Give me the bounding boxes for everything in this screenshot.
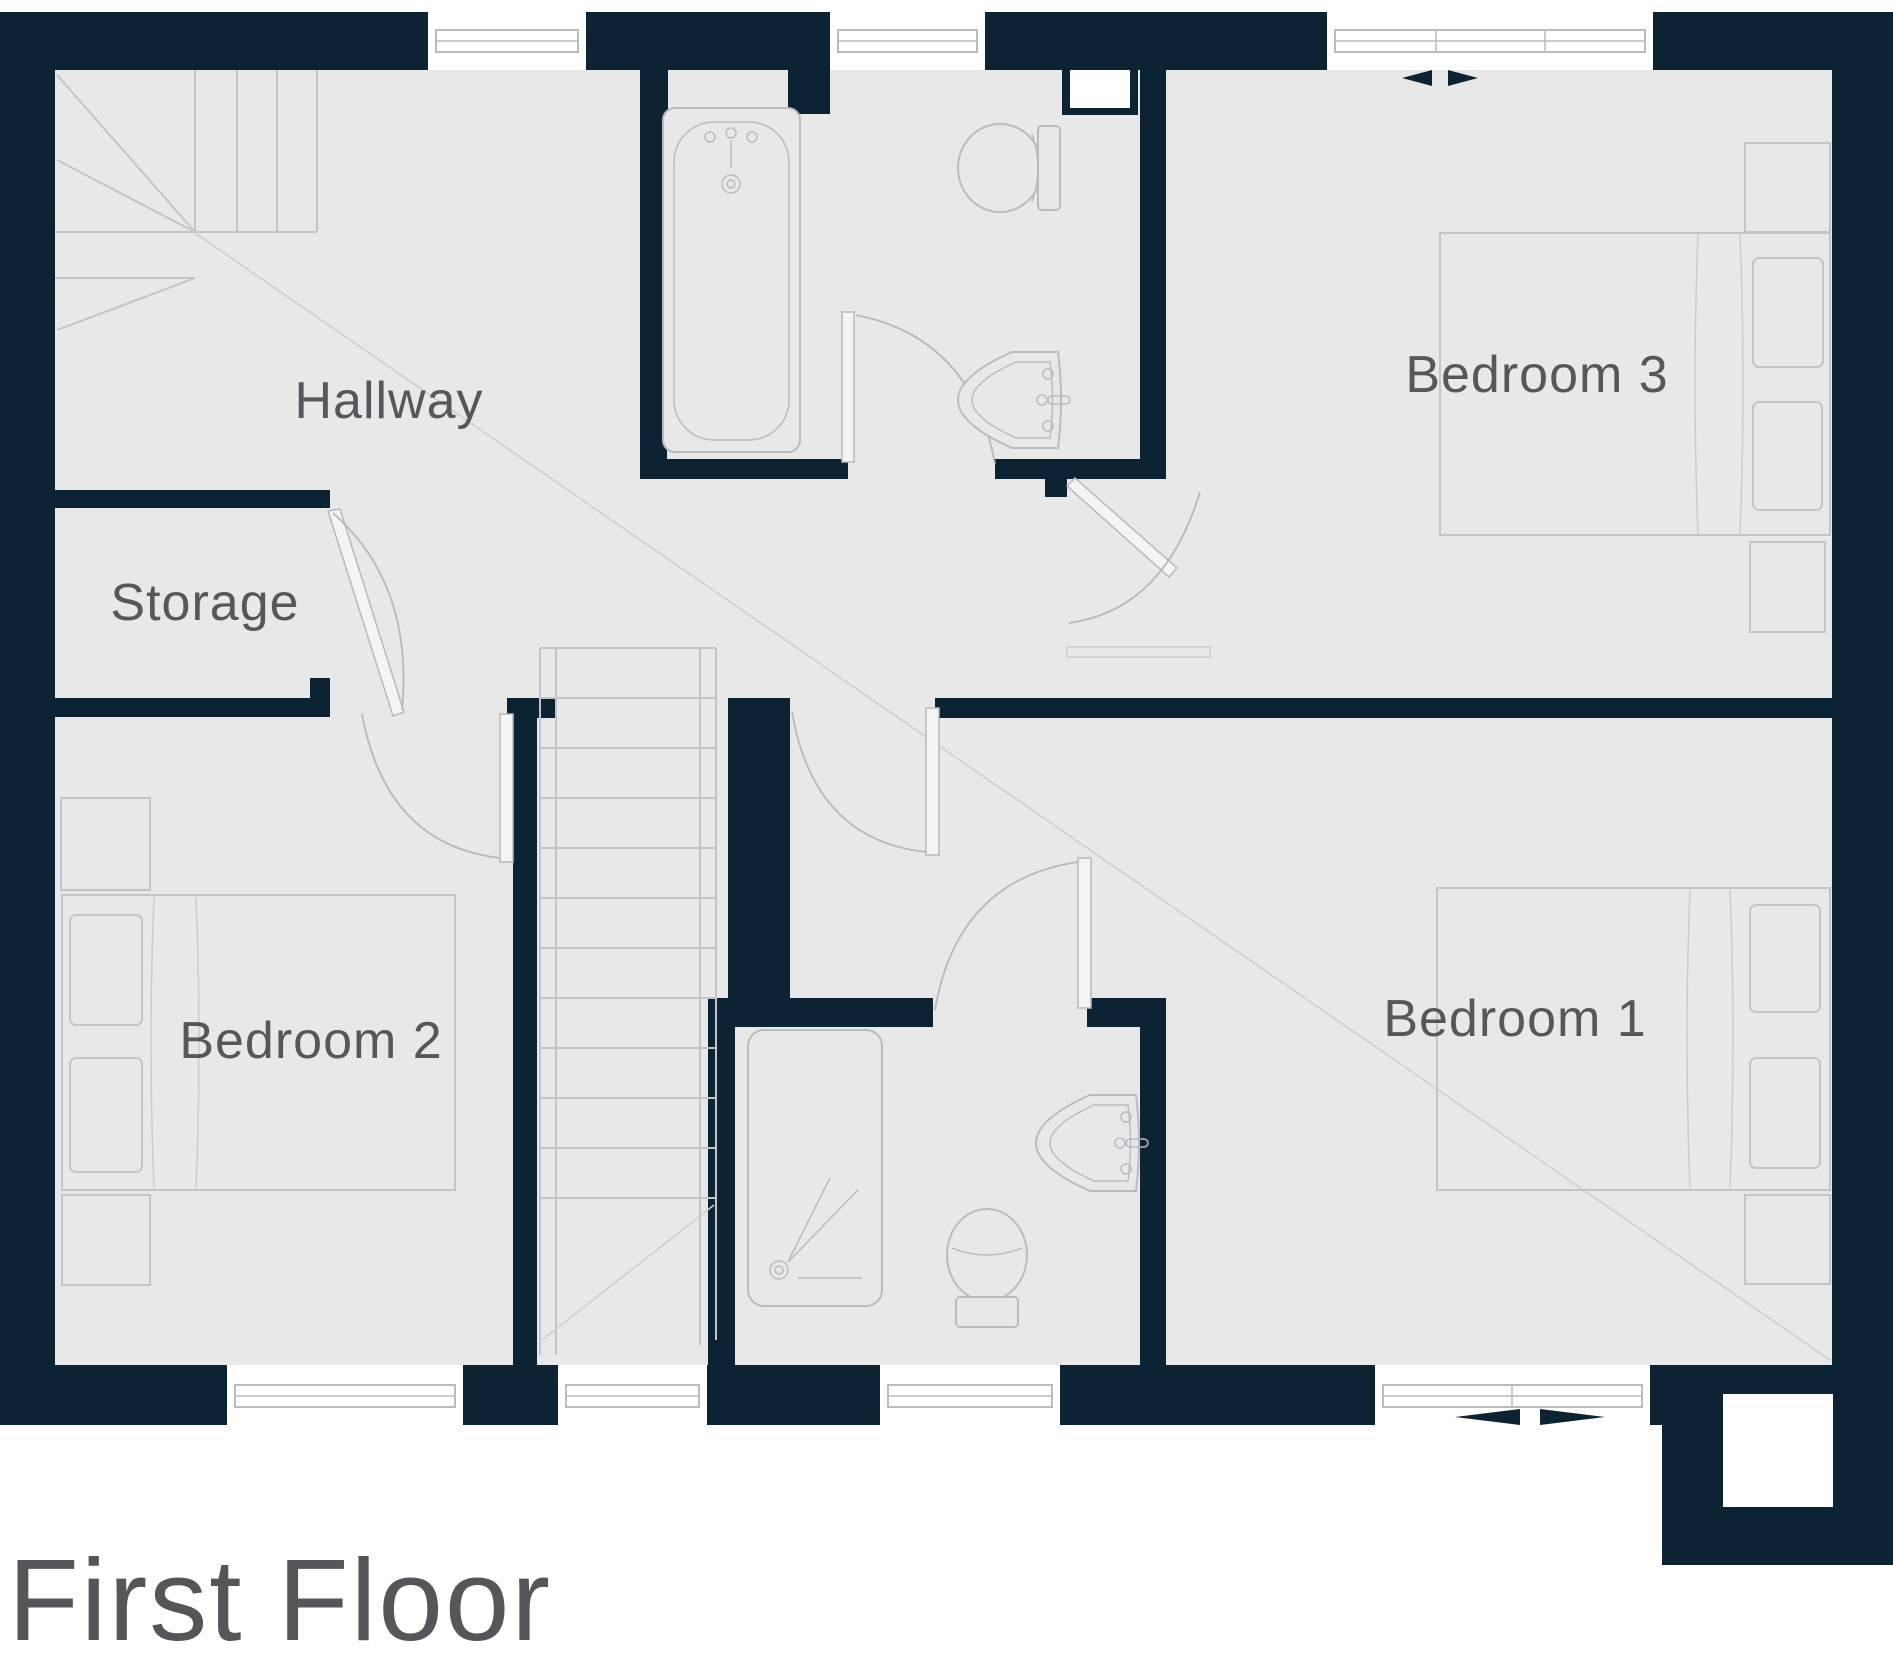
exterior-notch	[1723, 1394, 1833, 1507]
window-bottom-1	[227, 1365, 463, 1425]
window-bottom-4	[1375, 1365, 1650, 1425]
shower-tray	[748, 1030, 882, 1306]
window-bottom-2	[558, 1365, 707, 1425]
wall-recess	[1070, 70, 1130, 108]
floor-plan-svg: Hallway Storage Bedroom 2 Bedroom 3 Bedr…	[0, 0, 1893, 1653]
floor-step	[1085, 1338, 1136, 1365]
bedroom1-label: Bedroom 1	[1383, 990, 1646, 1048]
shower-room-toilet	[947, 1209, 1027, 1327]
bathtub	[663, 108, 800, 452]
bathroom-toilet	[958, 124, 1060, 212]
storage-label: Storage	[110, 574, 299, 632]
floor-plan-page: Hallway Storage Bedroom 2 Bedroom 3 Bedr…	[0, 0, 1893, 1653]
bedroom3-label: Bedroom 3	[1405, 346, 1668, 404]
window-bottom-3	[880, 1365, 1060, 1425]
page-title: First Floor	[8, 1535, 552, 1653]
window-top-1	[428, 12, 586, 70]
bedroom2-label: Bedroom 2	[179, 1012, 442, 1070]
hallway-label: Hallway	[294, 372, 483, 430]
window-top-2	[830, 12, 985, 70]
